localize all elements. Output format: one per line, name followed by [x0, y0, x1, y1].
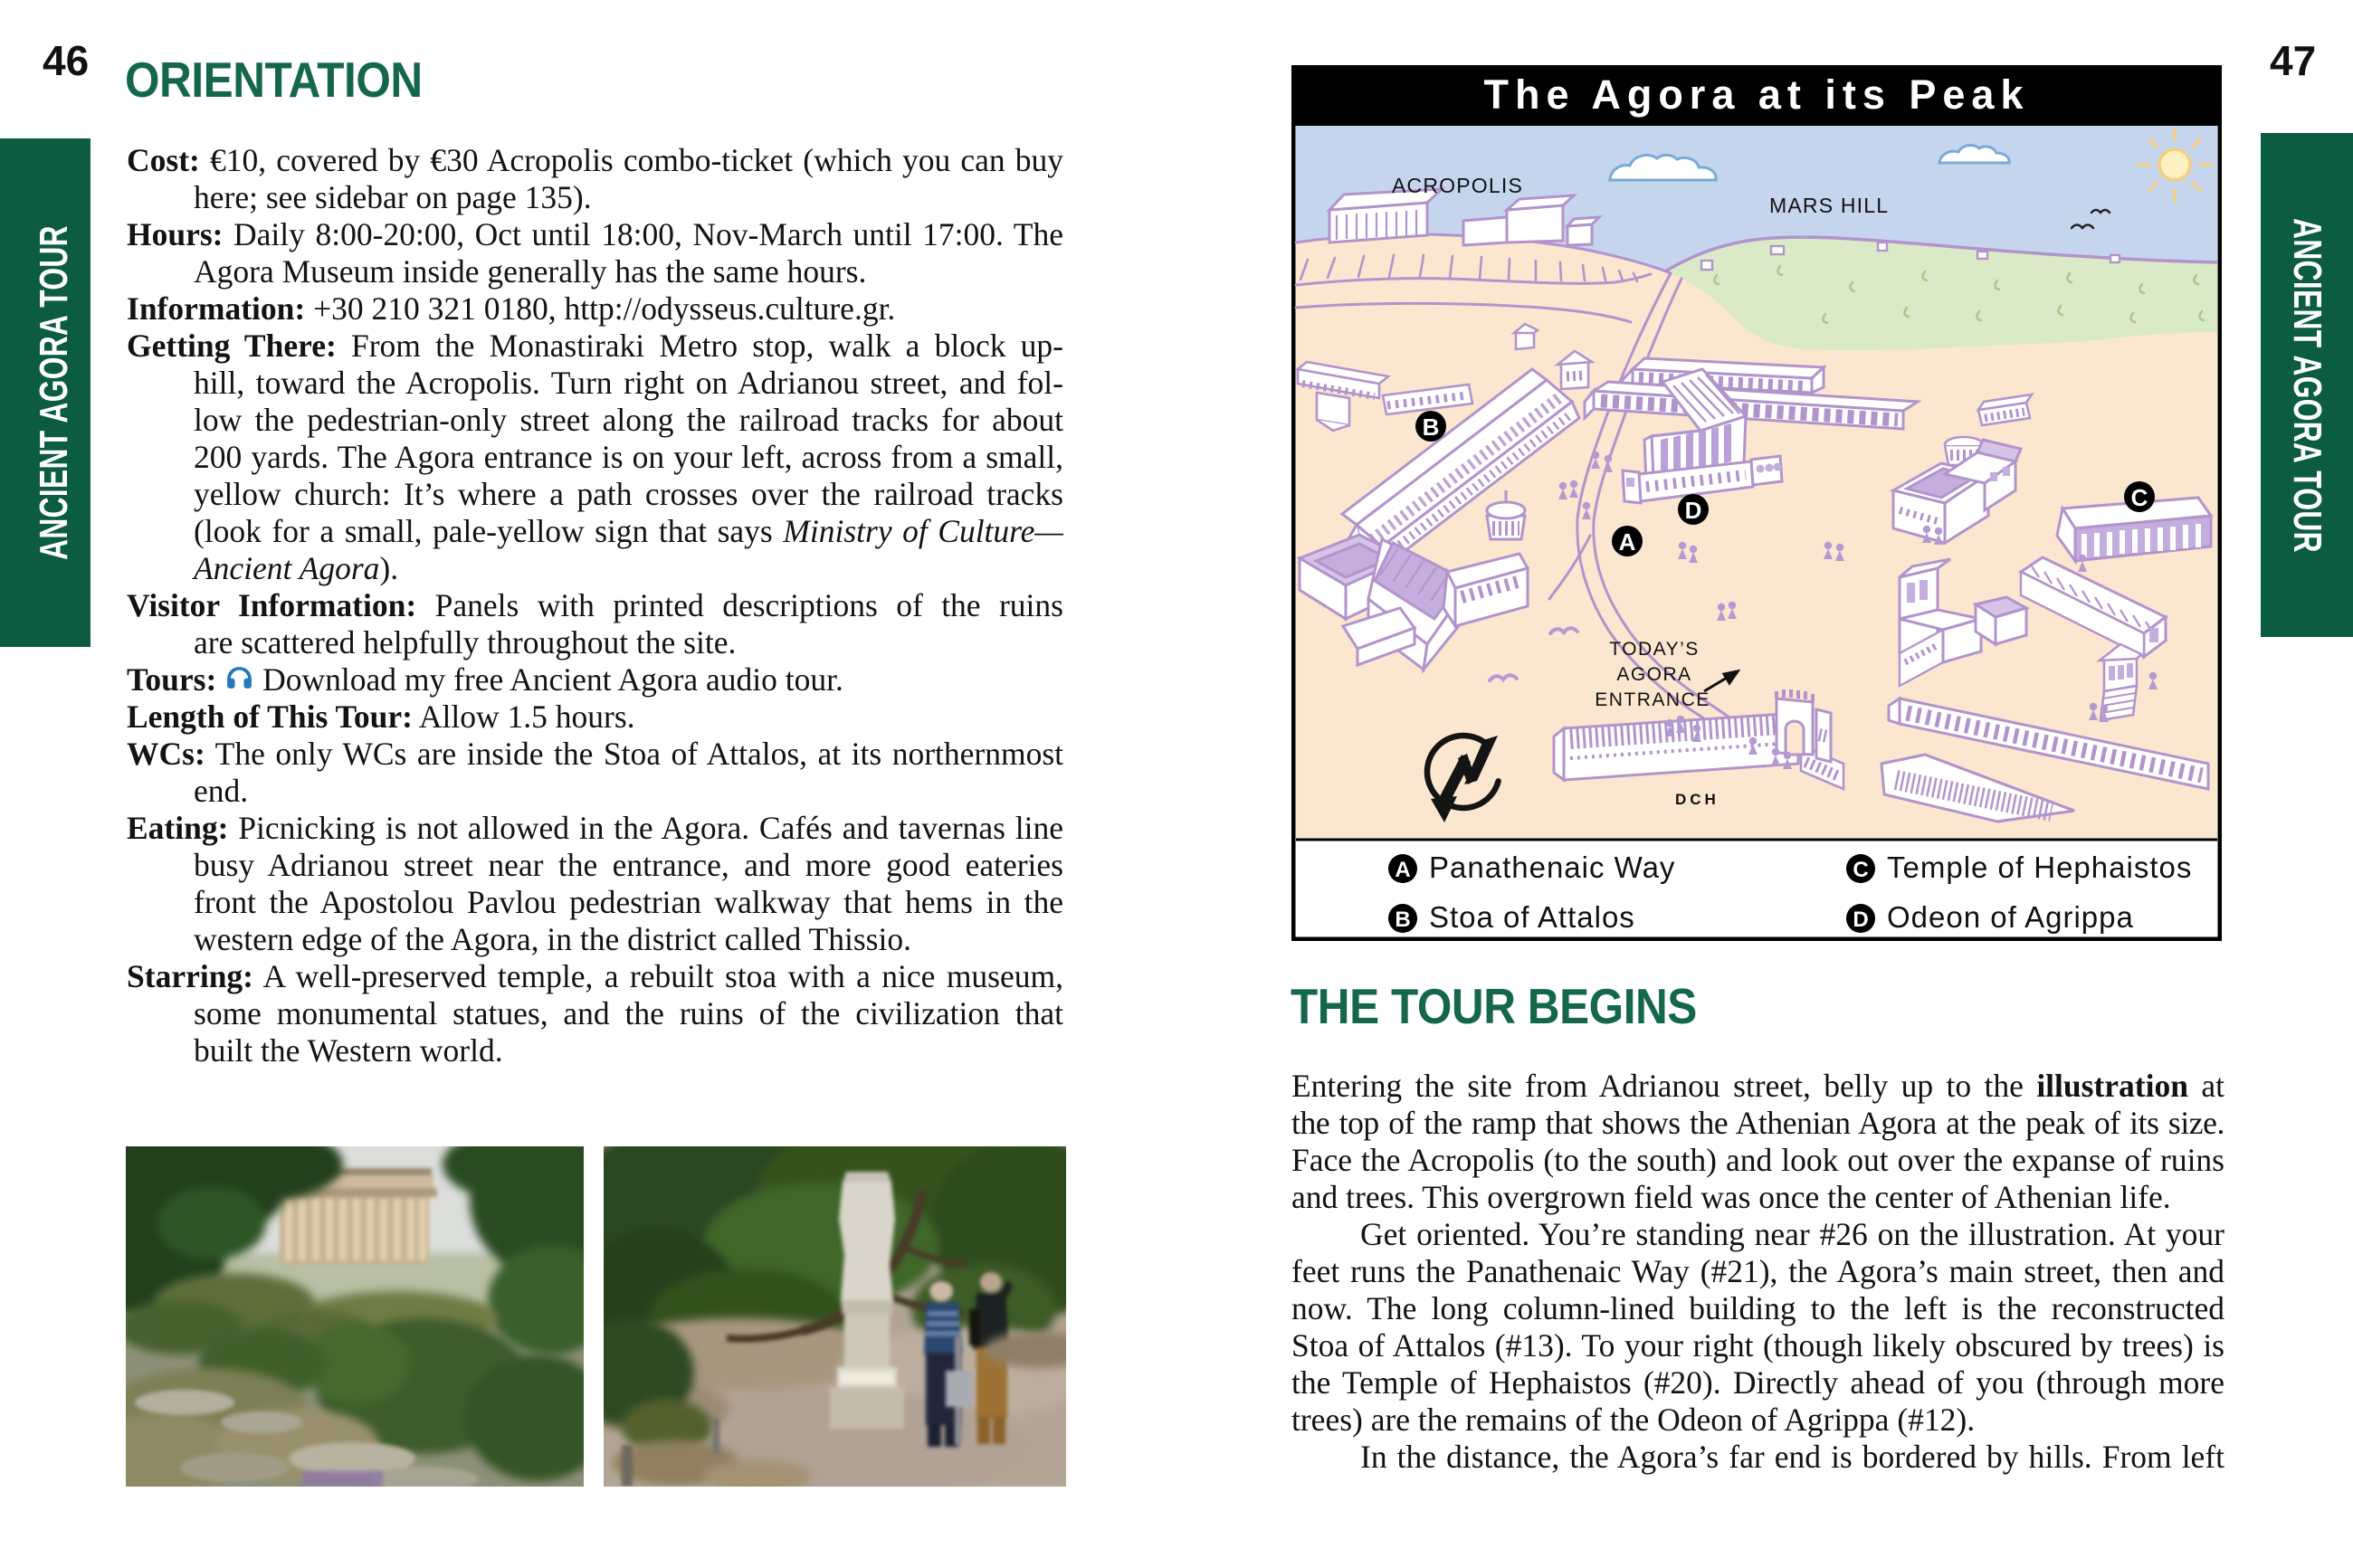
- svg-text:B: B: [1423, 413, 1440, 441]
- svg-text:Odeon of Agrippa: Odeon of Agrippa: [1887, 900, 2134, 934]
- svg-text:AGORA: AGORA: [1616, 664, 1691, 685]
- svg-text:A: A: [1395, 858, 1410, 882]
- svg-text:ENTRANCE: ENTRANCE: [1595, 689, 1710, 710]
- svg-text:Temple of Hephaistos: Temple of Hephaistos: [1887, 851, 2192, 884]
- svg-text:A: A: [1619, 528, 1636, 556]
- svg-text:DCH: DCH: [1675, 791, 1719, 808]
- svg-text:B: B: [1395, 908, 1410, 932]
- svg-text:MARS HILL: MARS HILL: [1769, 194, 1889, 217]
- svg-text:C: C: [2131, 484, 2148, 511]
- svg-text:Stoa of Attalos: Stoa of Attalos: [1429, 900, 1635, 934]
- svg-text:The Agora at its Peak: The Agora at its Peak: [1484, 71, 2030, 118]
- svg-text:ACROPOLIS: ACROPOLIS: [1392, 174, 1523, 197]
- svg-text:TODAY’S: TODAY’S: [1609, 639, 1700, 660]
- svg-text:Panathenaic Way: Panathenaic Way: [1429, 851, 1675, 884]
- svg-text:D: D: [1853, 908, 1868, 932]
- svg-text:C: C: [1853, 858, 1868, 882]
- svg-text:D: D: [1685, 497, 1702, 524]
